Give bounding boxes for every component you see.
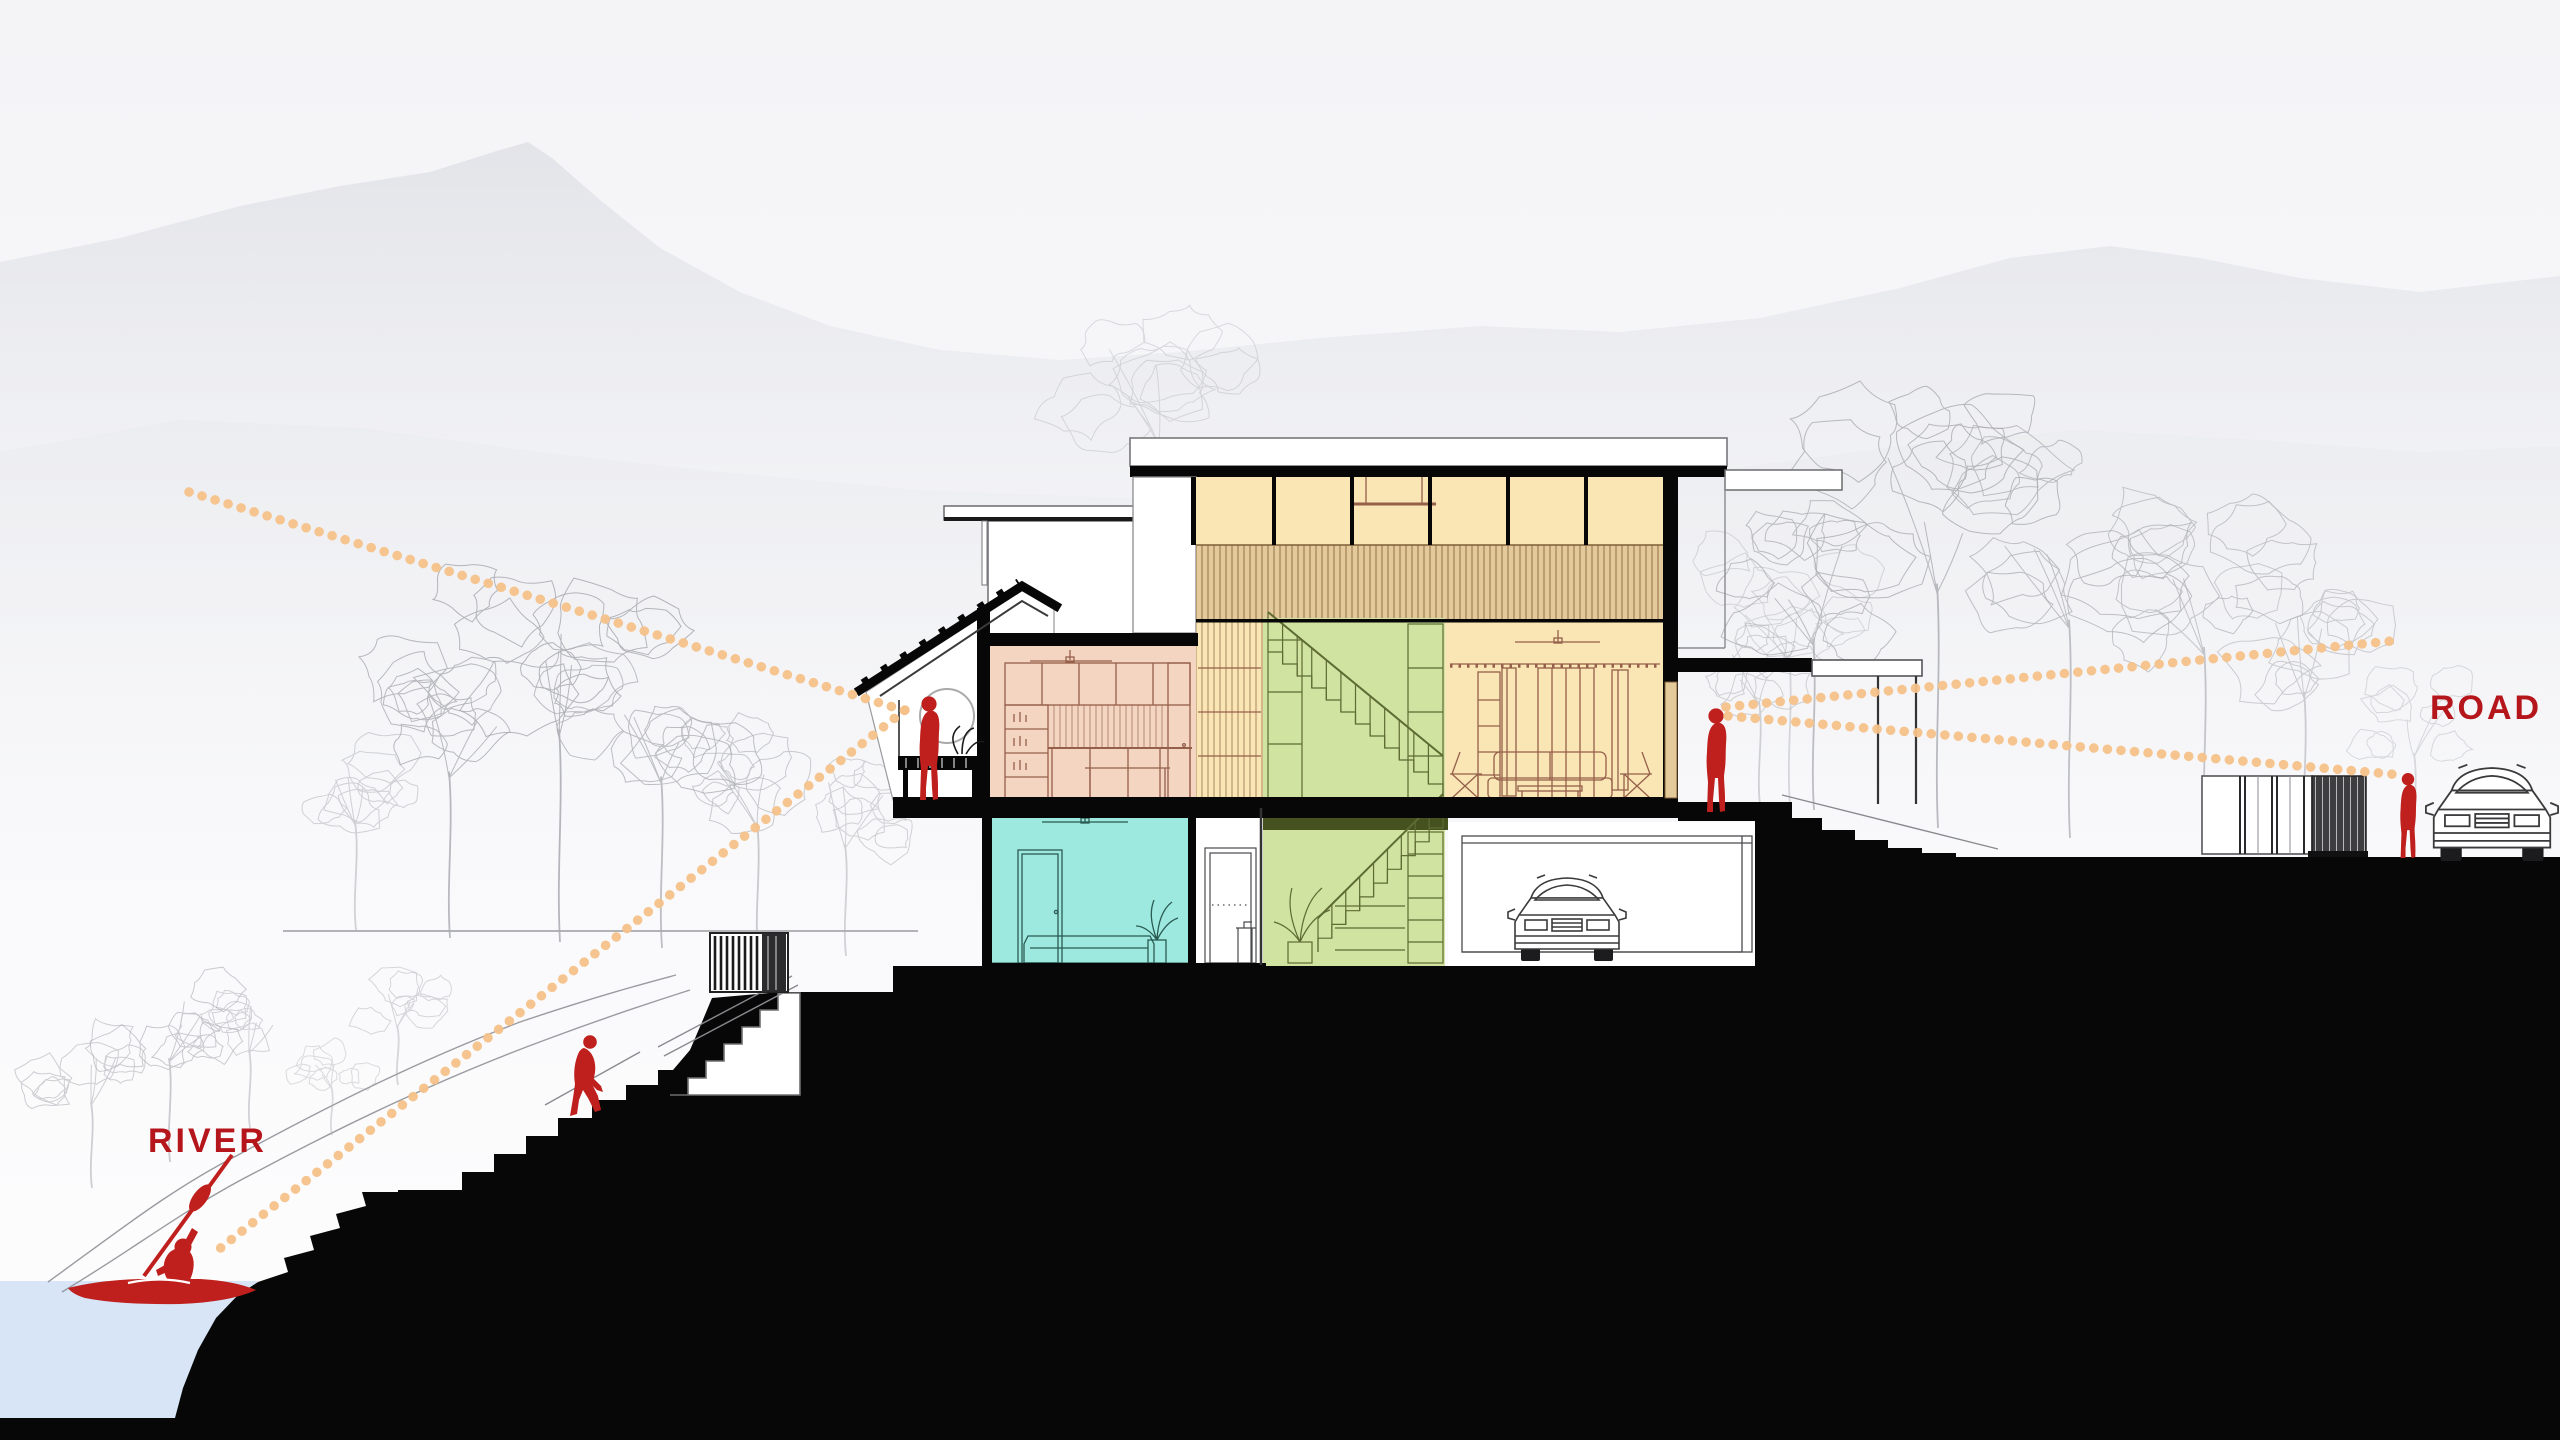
room-bedroom-lower — [985, 808, 1196, 965]
river-label: RIVER — [148, 1122, 267, 1160]
terrace-door — [1665, 682, 1677, 798]
road-gate — [2202, 776, 2368, 857]
room-hall — [1196, 808, 1263, 965]
road-label: ROAD — [2430, 689, 2542, 727]
river-gate — [710, 933, 788, 992]
section-diagram: RIVER ROAD — [0, 0, 2560, 1440]
roof-parapet — [1130, 438, 1727, 466]
room-stair-core-upper — [1263, 618, 1445, 803]
upper-wall-band — [1133, 477, 1196, 633]
